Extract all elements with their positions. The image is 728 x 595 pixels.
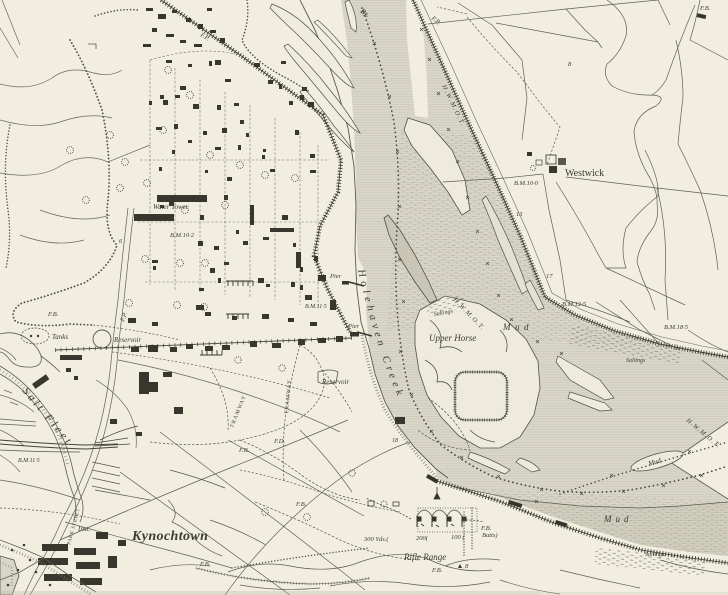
svg-text:Saltings: Saltings [626, 358, 646, 364]
svg-text:Upper Horse: Upper Horse [429, 333, 476, 343]
svg-text:F.D.: F.D. [273, 438, 285, 445]
svg-text:B.M.12·5: B.M.12·5 [562, 301, 587, 308]
svg-text:P.O.: P.O. [54, 543, 67, 551]
svg-text:F.B.: F.B. [480, 525, 492, 532]
svg-text:F.B.: F.B. [431, 567, 443, 574]
svg-text:13: 13 [516, 211, 523, 218]
svg-text:Pier: Pier [347, 323, 360, 330]
svg-text:200(: 200( [416, 535, 429, 542]
svg-text:F.B.: F.B. [199, 561, 211, 568]
svg-text:B.M.11·5: B.M.11·5 [18, 458, 40, 464]
svg-text:Inst.: Inst. [77, 525, 91, 533]
svg-text:Mud: Mud [502, 322, 533, 332]
svg-text:Kynochtown: Kynochtown [131, 529, 208, 544]
svg-text:B.M.10·0: B.M.10·0 [514, 180, 539, 187]
svg-text:B.M.18·5: B.M.18·5 [664, 324, 689, 331]
svg-text:300 Yds.(: 300 Yds.( [363, 536, 389, 543]
svg-text:100 (: 100 ( [451, 534, 465, 541]
svg-text:18: 18 [392, 438, 398, 444]
svg-text:F.B.: F.B. [47, 311, 59, 318]
svg-text:F.B.: F.B. [238, 447, 250, 454]
svg-text:Rifle Range: Rifle Range [403, 552, 446, 562]
svg-text:B.M.11·5: B.M.11·5 [305, 304, 327, 310]
svg-text:Water Tower: Water Tower [153, 203, 189, 211]
svg-text:F.B.: F.B. [699, 5, 711, 12]
svg-text:Reservoir: Reservoir [321, 378, 349, 386]
svg-text:B.M.10·2: B.M.10·2 [170, 232, 195, 239]
svg-text:Butts): Butts) [482, 532, 498, 539]
svg-text:Sch.: Sch. [88, 561, 100, 569]
svg-text:Reservoir: Reservoir [113, 336, 141, 344]
svg-text:Mud: Mud [603, 514, 633, 524]
svg-text:Pier: Pier [329, 273, 342, 280]
svg-text:Tanks: Tanks [52, 333, 68, 341]
svg-text:F.B.: F.B. [295, 501, 307, 508]
svg-text:17: 17 [546, 273, 553, 280]
svg-text:Saltings: Saltings [645, 552, 665, 558]
